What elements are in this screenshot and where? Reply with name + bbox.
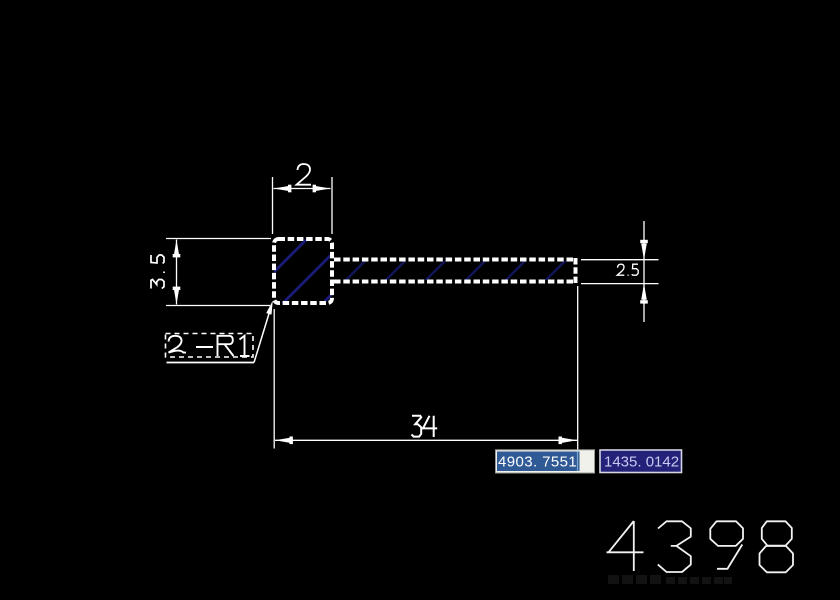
svg-text:1435. 0142: 1435. 0142 [604,454,679,471]
svg-text:4903. 7551: 4903. 7551 [498,454,577,471]
